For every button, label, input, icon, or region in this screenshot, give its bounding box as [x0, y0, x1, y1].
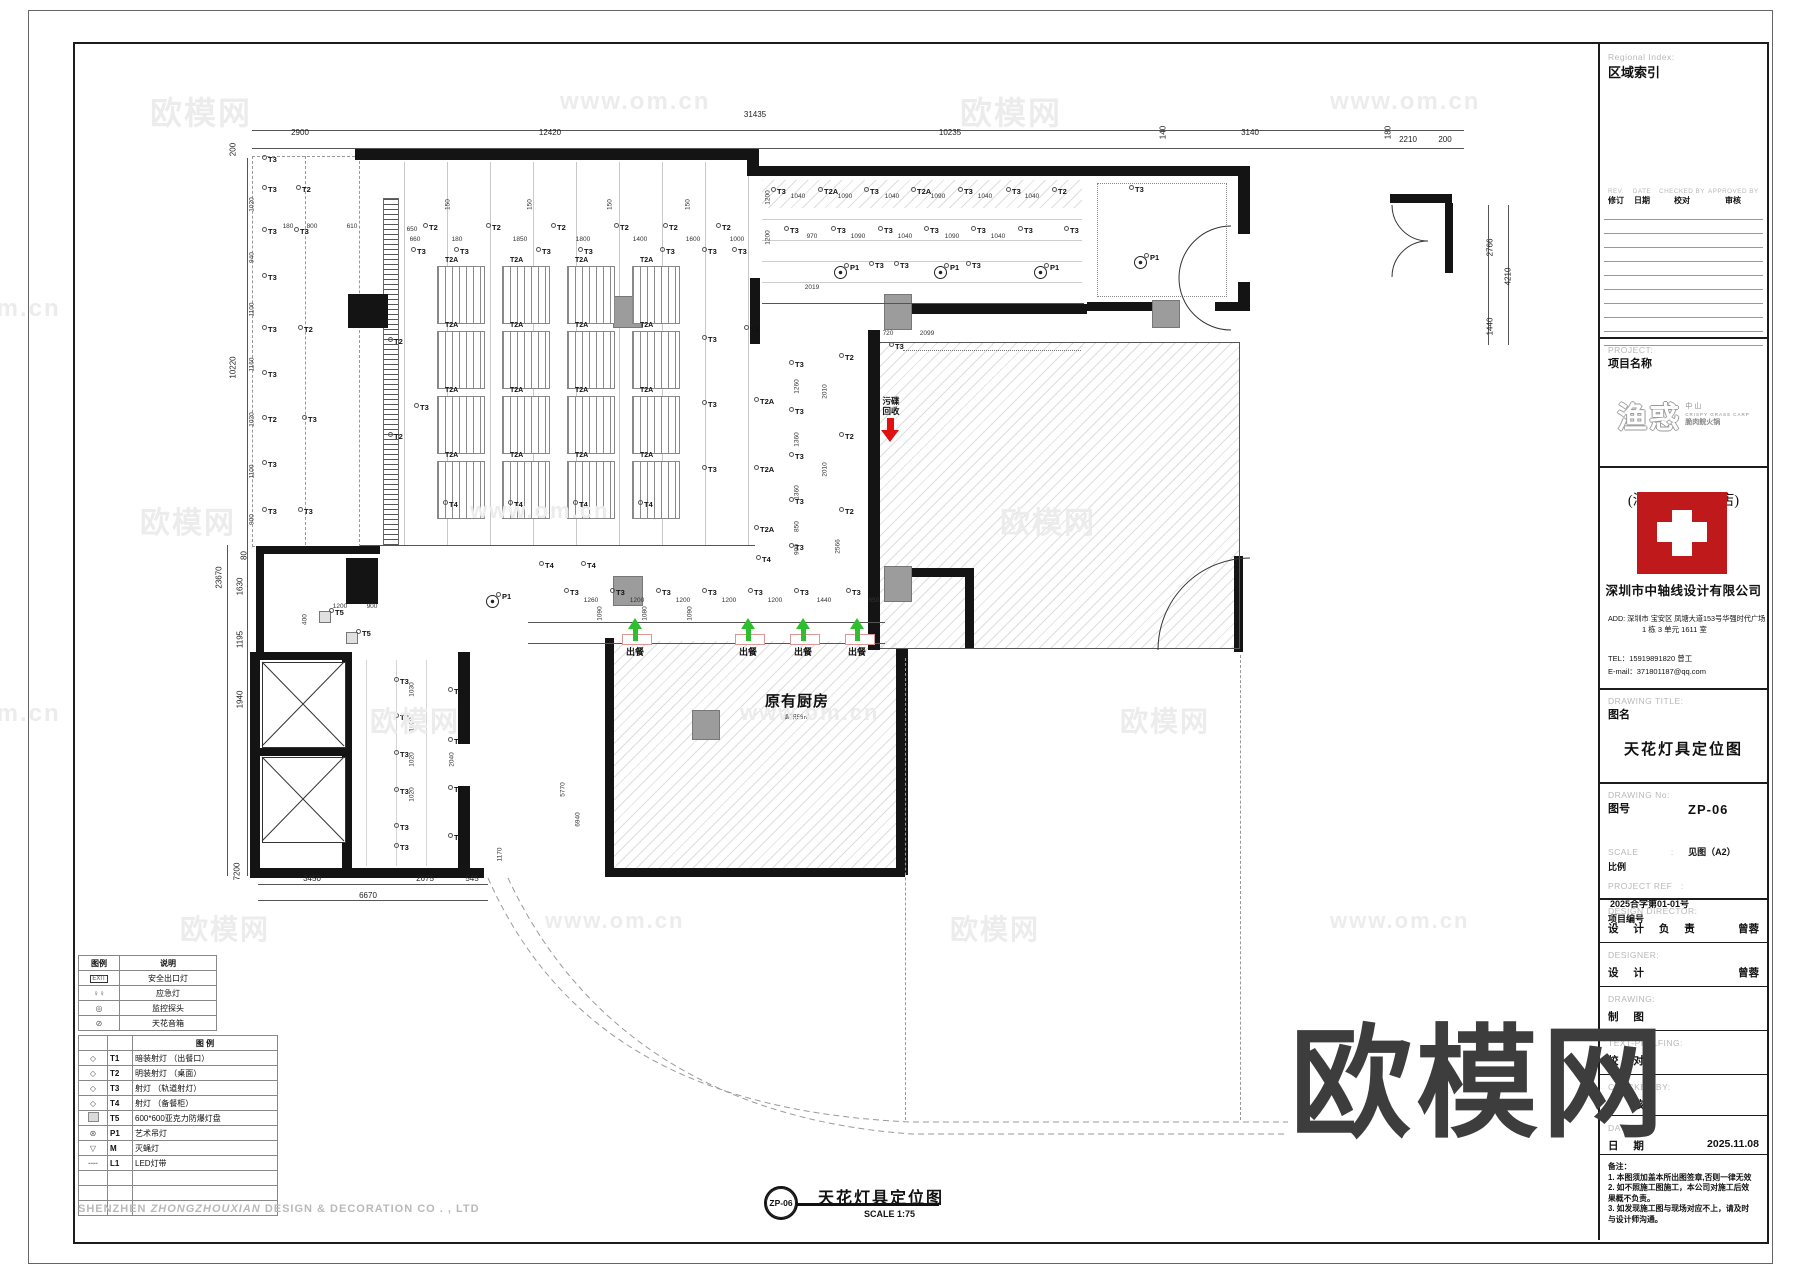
- dimension-small: 1090: [918, 193, 958, 200]
- light-dot-icon: [754, 465, 759, 470]
- light-label-t2a: T2A: [445, 257, 458, 264]
- dimension: 1940: [236, 678, 245, 722]
- light-dot-icon: [394, 843, 399, 848]
- light-label-t3: T3: [262, 370, 277, 379]
- rev-empty-row: [1604, 206, 1763, 220]
- light-dot-icon: [551, 223, 556, 228]
- light-dot-icon: [262, 155, 267, 160]
- footer-company: SHENZHEN ZHONGZHOUXIAN DESIGN & DECORATI…: [78, 1203, 480, 1215]
- dimension-small: 1600: [673, 236, 713, 243]
- company-address-1: ADD: 深圳市 宝安区 凤塘大道153号华强时代广场: [1608, 614, 1765, 624]
- light-dot-icon: [716, 223, 721, 228]
- light-dot-icon: [660, 247, 665, 252]
- serve-label: 出餐: [791, 645, 815, 658]
- dimension-small: 1200: [709, 597, 749, 604]
- dimension: 3140: [1228, 128, 1272, 137]
- light-dot-icon: [744, 325, 749, 330]
- dotted-leader: [903, 350, 1081, 351]
- dimension-small: 150: [445, 185, 452, 225]
- light-label-t3: T3: [610, 588, 625, 597]
- line: [1239, 342, 1240, 648]
- dimension-small: 1040: [965, 193, 1005, 200]
- light-dot-icon: [894, 261, 899, 266]
- wall: [1445, 203, 1453, 273]
- ceiling-panel-t2a: [437, 396, 485, 454]
- light-label-t2a: T2A: [640, 257, 653, 264]
- light-dot-icon: [454, 247, 459, 252]
- light-dot-icon: [889, 342, 894, 347]
- ref-sep: :: [1681, 881, 1684, 891]
- light-label-p1: P1: [1044, 263, 1059, 272]
- note-line: 与设计师沟通。: [1608, 1215, 1759, 1226]
- legend-row: EXIT安全出口灯: [79, 971, 217, 986]
- dimension-small: 1260: [571, 597, 611, 604]
- light-dot-icon: [262, 460, 267, 465]
- legend2-header-row: 图 例: [79, 1036, 278, 1051]
- brand-side-3: 脆肉鲩火锅: [1685, 419, 1720, 426]
- light-dot-icon: [702, 247, 707, 252]
- dimension-small: 1090: [838, 233, 878, 240]
- revision-table: REV.DATECHECKED BYAPPROVED BY 修订日期校对审核: [1600, 188, 1767, 346]
- light-label-t2: T2: [486, 223, 501, 232]
- light-dot-icon: [924, 226, 929, 231]
- light-dot-icon: [789, 360, 794, 365]
- dimension-small: 1200: [765, 218, 772, 258]
- design-director-label-zh: 设 计 负 责: [1608, 921, 1701, 936]
- watermark: www.om.cn: [470, 498, 609, 524]
- light-dot-icon: [394, 677, 399, 682]
- design-director-row: DESIGN DIRECTOR: 设 计 负 责 曾蓉: [1600, 902, 1767, 940]
- designer-row: DESIGNER: 设 计 曾蓉: [1600, 946, 1767, 984]
- dimension-small: 1260: [794, 367, 801, 407]
- dimension: 140: [1159, 111, 1168, 155]
- dimension: 12420: [528, 128, 572, 137]
- light-dot-icon: [262, 370, 267, 375]
- company-name: 深圳市中轴线设计有限公司: [1600, 580, 1767, 599]
- light-label-t3: T3: [869, 261, 884, 270]
- light-label-t3: T3: [564, 588, 579, 597]
- designer-name: 曾蓉: [1738, 965, 1759, 980]
- light-dot-icon: [262, 325, 267, 330]
- light-label-t2: T2: [614, 223, 629, 232]
- light-dot-icon: [1064, 226, 1069, 231]
- dimension-small: 610: [332, 223, 372, 230]
- light-label-t2a: T2A: [754, 465, 774, 474]
- dimension-small: 1020: [249, 400, 256, 440]
- legend2-row: [79, 1171, 278, 1186]
- divider: [1600, 688, 1767, 690]
- light-label-p1: P1: [944, 263, 959, 272]
- brand-side-1: 中 山: [1685, 403, 1701, 410]
- light-label-t2a: T2A: [510, 387, 523, 394]
- dimension-small: 1020: [409, 775, 416, 815]
- wall: [1215, 302, 1250, 311]
- wall: [750, 278, 760, 344]
- notes-title: 备注：: [1608, 1162, 1759, 1173]
- dimension: 7200: [233, 850, 242, 894]
- light-dot-icon: [302, 415, 307, 420]
- regional-index-label-zh: 区域索引: [1608, 62, 1759, 81]
- note-line: 2. 如不照施工图施工，本公司对施工后效: [1608, 1183, 1759, 1194]
- light-dot-icon: [443, 500, 448, 505]
- light-dot-icon: [702, 400, 707, 405]
- dimension-small: 1020: [249, 185, 256, 225]
- dimension-small: 660: [395, 236, 435, 243]
- light-label-t2a: T2A: [640, 452, 653, 459]
- light-dot-icon: [262, 227, 267, 232]
- line: [762, 303, 1084, 304]
- dimension-small: 1090: [825, 193, 865, 200]
- light-dot-icon: [789, 407, 794, 412]
- rev-empty-row: [1604, 290, 1763, 304]
- light-label-t4: T4: [539, 561, 554, 570]
- dimension-small: 1360: [794, 420, 801, 460]
- solid-block: [346, 558, 378, 604]
- light-label-t3: T3: [789, 407, 804, 416]
- date-value: 2025.11.08: [1707, 1138, 1759, 1153]
- light-dot-icon: [394, 750, 399, 755]
- dimension-small: 1100: [249, 452, 256, 492]
- light-label-t2: T2: [388, 337, 403, 346]
- light-dot-icon: [411, 247, 416, 252]
- brand-logo-main: 渔惑: [1617, 393, 1681, 437]
- scale-sep: :: [1671, 847, 1674, 857]
- scale-value: 见图（A2）: [1688, 847, 1736, 857]
- light-label-t3: T3: [702, 247, 717, 256]
- dashed-ceiling-zone: [252, 156, 360, 547]
- light-label-t2: T2: [551, 223, 566, 232]
- light-dot-icon: [663, 223, 668, 228]
- light-dot-icon: [262, 185, 267, 190]
- rev-empty-row: [1604, 220, 1763, 234]
- dimension-small: 5770: [560, 770, 567, 810]
- column: [692, 710, 720, 740]
- watermark: 欧模网: [960, 88, 1062, 134]
- column: [884, 294, 912, 330]
- exit-light-icon: EXIT: [90, 975, 107, 983]
- rev-header-en: APPROVED BY: [1708, 188, 1758, 195]
- wall: [755, 166, 1250, 176]
- light-dot-icon: [388, 432, 393, 437]
- note-line: 1. 本图须加盖本所出图签章,否则一律无效: [1608, 1173, 1759, 1184]
- light-dot-icon: [1129, 185, 1134, 190]
- light-label-t2: T2: [839, 353, 854, 362]
- light-label-p1: P1: [844, 263, 859, 272]
- watermark: www.om.cn: [1330, 88, 1480, 116]
- dimension-small: 2099: [907, 330, 947, 337]
- brand-logo-side: 中 山 CRISPY GRASS CARP 脆肉鲩火锅: [1685, 403, 1749, 427]
- notes-section: 备注： 1. 本图须加盖本所出图签章,否则一律无效2. 如不照施工图施工，本公司…: [1600, 1158, 1767, 1229]
- divider: [1600, 782, 1767, 784]
- watermark: 欧模网: [180, 908, 270, 948]
- ceiling-panel-t2a: [567, 331, 615, 389]
- line: [258, 884, 488, 885]
- dimension-small: 940: [249, 238, 256, 278]
- dimension-small: 650: [392, 226, 432, 233]
- wall: [896, 648, 908, 875]
- elevator-shaft: [262, 662, 346, 748]
- dashed-line: [1240, 655, 1241, 1120]
- dimension-small: 1040: [778, 193, 818, 200]
- light-dot-icon: [911, 187, 916, 192]
- caption-scale: SCALE 1:75: [864, 1209, 915, 1219]
- light-dot-icon: [486, 223, 491, 228]
- light-label-t3: T3: [262, 155, 277, 164]
- dimension-small: 2019: [792, 284, 832, 291]
- light-dot-icon: [638, 500, 643, 505]
- light-label-t3: T3: [889, 342, 904, 351]
- light-label-t3: T3: [1018, 226, 1033, 235]
- light-dot-icon: [656, 588, 661, 593]
- ceiling-panel-t2a: [632, 396, 680, 454]
- light-dot-icon: [878, 226, 883, 231]
- light-dot-icon: [864, 187, 869, 192]
- legend-row: ♀♀应急灯: [79, 986, 217, 1001]
- light-label-t3: T3: [846, 588, 861, 597]
- wall: [250, 652, 350, 660]
- light-label-t3: T3: [702, 588, 717, 597]
- watermark: www.om.cn: [740, 700, 879, 726]
- light-label-t3: T3: [660, 247, 675, 256]
- light-label-t3: T3: [702, 465, 717, 474]
- drawing-title-label-zh: 图名: [1608, 706, 1759, 722]
- dimension-small: 720: [868, 330, 908, 337]
- designer-label-zh: 设 计: [1608, 965, 1650, 980]
- light-dot-icon: [539, 561, 544, 566]
- watermark: www.om.cn: [545, 908, 684, 934]
- light-label-t3: T3: [394, 843, 409, 852]
- dimension-small: 1400: [620, 236, 660, 243]
- light-label-t2a: T2A: [575, 257, 588, 264]
- watermark-dark: 欧模网: [1290, 985, 1668, 1162]
- light-label-t5: T5: [356, 629, 371, 638]
- light-dot-icon: [581, 561, 586, 566]
- wall: [256, 546, 380, 554]
- light-dot-icon: [702, 465, 707, 470]
- dish-return-arrow-icon: [881, 430, 899, 442]
- light-dot-icon: [448, 785, 453, 790]
- dimension-small: 180: [437, 236, 477, 243]
- dimension-small: 1170: [497, 835, 504, 875]
- divider: [1600, 898, 1767, 900]
- light-dot-icon: [356, 629, 361, 634]
- project-section: PROJECT: 项目名称 渔惑 中 山 CRISPY GRASS CARP 脆…: [1600, 341, 1767, 441]
- dimension-small: 1200: [765, 178, 772, 218]
- hatch-region: [880, 343, 1239, 648]
- light-dot-icon: [388, 337, 393, 342]
- note-line: 3. 如发现施工图与现场对应不上，请及时: [1608, 1204, 1759, 1215]
- light-dot-icon: [958, 187, 963, 192]
- dimension-small: 1020: [409, 740, 416, 780]
- ceiling-panel-t2a: [437, 266, 485, 324]
- scale-label-en: SCALE: [1608, 847, 1638, 857]
- drawing-title-value: 天花灯具定位图: [1600, 738, 1767, 759]
- light-label-t3: T3: [394, 677, 409, 686]
- light-label-t3: T3: [394, 787, 409, 796]
- wall: [605, 638, 614, 877]
- column: [1152, 300, 1180, 328]
- project-label-en: PROJECT:: [1608, 345, 1759, 355]
- light-label-t4: T4: [581, 561, 596, 570]
- company-logo: [1637, 492, 1727, 574]
- drawing-ref-bubble: ZP-06: [764, 1186, 798, 1220]
- light-dot-icon: [614, 223, 619, 228]
- dimension: 23670: [215, 556, 224, 600]
- dimension: 6670: [346, 891, 390, 900]
- light-dot-icon: [831, 226, 836, 231]
- legend2-row: ⊛P1艺术吊灯: [79, 1126, 278, 1141]
- dimension-small: 900: [352, 603, 392, 610]
- ceiling-panel-t2a: [567, 396, 615, 454]
- drawing-no-section: DRAWING No: 图号 ZP-06: [1600, 786, 1767, 820]
- wall: [256, 546, 264, 658]
- line: [360, 545, 755, 546]
- light-dot-icon: [971, 226, 976, 231]
- light-label-t2a: T2A: [445, 387, 458, 394]
- light-dot-icon: [1018, 226, 1023, 231]
- project-label-zh: 项目名称: [1608, 355, 1759, 371]
- drawing-no-label-en: DRAWING No:: [1608, 790, 1759, 800]
- dimension-small: 1000: [717, 236, 757, 243]
- light-dot-icon: [262, 507, 267, 512]
- rev-empty-row: [1604, 234, 1763, 248]
- light-dot-icon: [262, 415, 267, 420]
- brand-logo: 渔惑 中 山 CRISPY GRASS CARP 脆肉鲩火锅: [1608, 393, 1759, 437]
- light-label-t3: T3: [394, 750, 409, 759]
- dimension: 1440: [1486, 305, 1495, 349]
- wall: [1238, 166, 1250, 234]
- light-label-t2a: T2A: [640, 322, 653, 329]
- light-label-t4: T4: [756, 555, 771, 564]
- dimension-small: 650: [854, 597, 894, 604]
- rev-header-en: DATE: [1628, 188, 1656, 195]
- dimension-small: 1200: [755, 597, 795, 604]
- light-label-t2a: T2A: [445, 322, 458, 329]
- drawing-title-section: DRAWING TITLE: 图名 天花灯具定位图: [1600, 692, 1767, 726]
- legend-header-row: 图例说明: [79, 956, 217, 971]
- dimension: 10220: [229, 346, 238, 390]
- dimension: 545: [450, 874, 494, 883]
- legend-symbols-table: 图例说明EXIT安全出口灯♀♀应急灯◎监控探头⊘天花音箱: [78, 955, 217, 1031]
- light-dot-icon: [1052, 187, 1057, 192]
- light-label-t3: T3: [394, 823, 409, 832]
- line: [528, 643, 885, 644]
- regional-index-section: Regional Index: 区域索引: [1600, 48, 1767, 85]
- light-label-t3: T3: [702, 400, 717, 409]
- dimension-small: 150: [685, 185, 692, 225]
- rev-empty-row: [1604, 318, 1763, 332]
- light-dot-icon: [298, 507, 303, 512]
- ceiling-panel-t2a: [502, 396, 550, 454]
- drawing-sheet: 欧模网www.om.cn欧模网www.om.cnom.cn欧模网www.om.c…: [0, 0, 1800, 1273]
- light-label-t2: T2: [298, 325, 313, 334]
- design-director-name: 曾蓉: [1738, 921, 1759, 936]
- hatch-region: [614, 641, 896, 875]
- light-label-t2: T2: [839, 432, 854, 441]
- dimension-small: 1040: [872, 193, 912, 200]
- dimension: 200: [1423, 135, 1467, 144]
- rev-empty-row: [1604, 276, 1763, 290]
- dimension-small: 900: [249, 500, 256, 540]
- rev-header-en: REV.: [1604, 188, 1628, 195]
- watermark: 欧模网: [140, 498, 236, 542]
- light-label-t2: T2: [663, 223, 678, 232]
- light-dot-icon: [839, 432, 844, 437]
- dimension: 1630: [236, 565, 245, 609]
- light-label-p1: P1: [496, 592, 511, 601]
- light-label-t2: T2: [388, 432, 403, 441]
- light-dot-icon: [496, 592, 501, 597]
- light-label-t4: T4: [744, 325, 759, 334]
- serve-arrow-stem: [855, 628, 860, 641]
- wall: [905, 304, 1087, 314]
- brand-side-2: CRISPY GRASS CARP: [1685, 412, 1749, 417]
- rev-header-zh: 修订: [1604, 195, 1628, 206]
- light-dot-icon: [610, 588, 615, 593]
- dimension: 200: [229, 128, 238, 172]
- company-tel: TEL：15919891820 曾工: [1608, 654, 1692, 664]
- dimension-small: 800: [292, 223, 332, 230]
- wall: [605, 868, 905, 877]
- light-dot-icon: [448, 833, 453, 838]
- light-dot-icon: [564, 588, 569, 593]
- light-dot-icon: [1006, 187, 1011, 192]
- light-label-t3: T3: [1129, 185, 1144, 194]
- dashed-line: [305, 156, 306, 545]
- legend2-row: ◇T3射灯 （轨道射灯）: [79, 1081, 278, 1096]
- light-label-t2a: T2A: [510, 257, 523, 264]
- dimension-small: 1040: [978, 233, 1018, 240]
- panel-light-icon: [88, 1112, 99, 1122]
- light-label-t2a: T2A: [575, 322, 588, 329]
- light-dot-icon: [298, 325, 303, 330]
- light-label-t2a: T2A: [754, 397, 774, 406]
- dish-return-arrow-stem: [887, 418, 894, 430]
- line: [227, 545, 228, 876]
- legend2-row: ▽M灭蝇灯: [79, 1141, 278, 1156]
- rev-header-zh: 日期: [1628, 195, 1656, 206]
- designer-label-en: DESIGNER:: [1608, 950, 1759, 960]
- legend2-row: ╌╌L1LED灯带: [79, 1156, 278, 1171]
- light-label-t3: T3: [702, 335, 717, 344]
- light-dot-icon: [869, 261, 874, 266]
- design-director-label-en: DESIGN DIRECTOR:: [1608, 906, 1759, 916]
- serve-label: 出餐: [736, 645, 760, 658]
- light-dot-icon: [818, 187, 823, 192]
- light-label-t2a: T2A: [754, 525, 774, 534]
- light-dot-icon: [732, 247, 737, 252]
- serving-hatch-window: [845, 634, 875, 645]
- rev-header-zh: 校对: [1656, 195, 1708, 206]
- footer-company-prefix: SHENZHEN: [78, 1203, 147, 1215]
- serve-label: 出餐: [623, 645, 647, 658]
- light-label-t3: T3: [302, 415, 317, 424]
- legend2-row: T5600*600亚克力防爆灯盘: [79, 1111, 278, 1126]
- rev-header-en: CHECKED BY: [1656, 188, 1708, 195]
- light-label-t3: T3: [656, 588, 671, 597]
- dimension-small: 1090: [932, 233, 972, 240]
- company-email: E-mail：371801187@qq.com: [1608, 667, 1706, 677]
- light-dot-icon: [1144, 253, 1149, 258]
- light-label-t3: T3: [262, 325, 277, 334]
- legend2-row: ◇T2明装射灯 （桌面）: [79, 1066, 278, 1081]
- ceiling-panel-t2a: [567, 266, 615, 324]
- light-label-t2: T2: [448, 785, 463, 794]
- light-label-t2a: T2A: [640, 387, 653, 394]
- legend-row: ⊘天花音箱: [79, 1016, 217, 1031]
- dimension-small: 1800: [563, 236, 603, 243]
- divider: [1600, 942, 1767, 943]
